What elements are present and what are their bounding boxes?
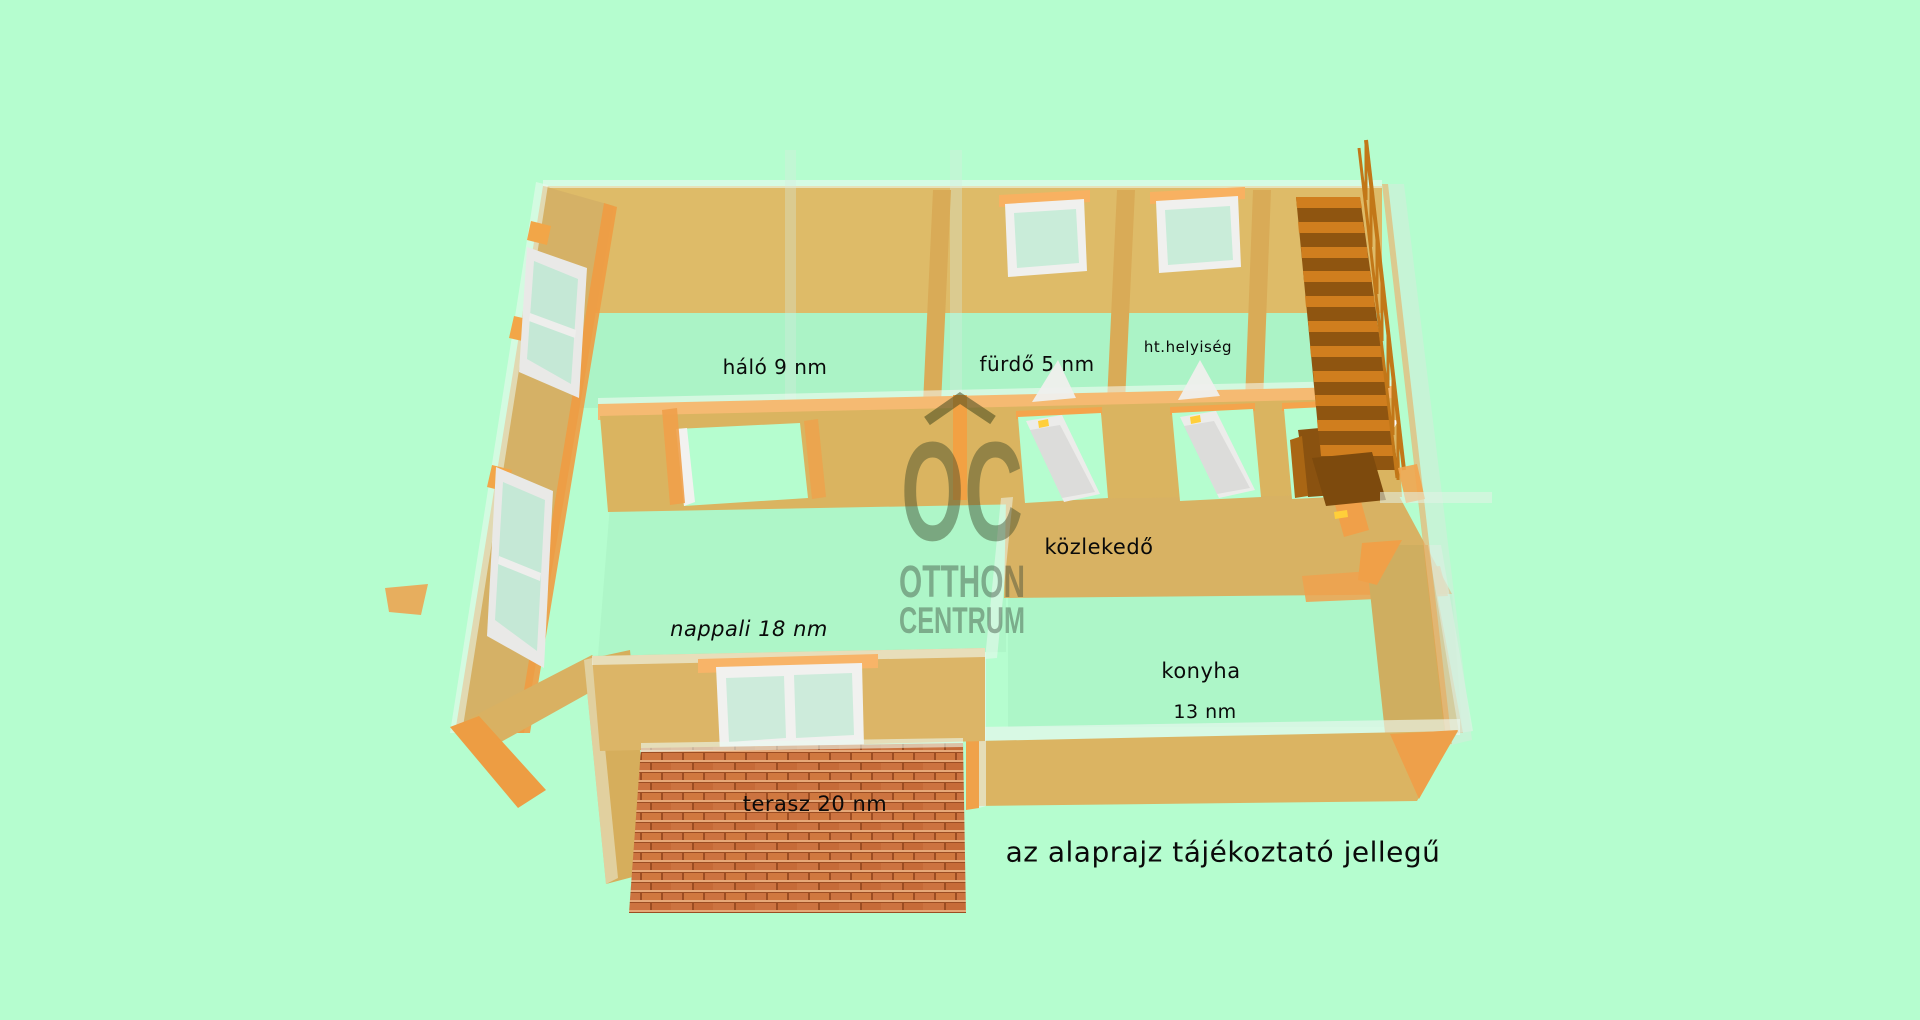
living-room-window — [716, 663, 864, 753]
room-label-terasz: terasz 20 nm — [743, 792, 887, 816]
watermark-monogram: OC — [901, 412, 1023, 570]
bathroom-window — [999, 190, 1090, 277]
left-wall-window-lower — [487, 467, 553, 668]
room-label-konyha: konyha — [1161, 659, 1240, 683]
left-wall-window-upper — [519, 247, 587, 398]
room-label-furdo: fürdő 5 nm — [979, 352, 1094, 376]
terrace — [629, 738, 966, 913]
disclaimer-note: az alaprajz tájékoztató jellegű — [1006, 836, 1441, 869]
watermark-line2: CENTRUM — [899, 600, 1025, 641]
building-3d-render: OC OTTHON CENTRUM — [0, 0, 1920, 1020]
room-label-halo: háló 9 nm — [723, 355, 828, 379]
room-label-kozlekedo: közlekedő — [1044, 535, 1153, 559]
room-label-nappali: nappali 18 nm — [670, 617, 828, 641]
utility-room-window — [1150, 187, 1245, 273]
watermark-logo: OC OTTHON CENTRUM — [899, 395, 1025, 641]
room-label-konyha-area: 13 nm — [1173, 701, 1236, 723]
room-label-ht-helyiseg: ht.helyiség — [1144, 338, 1232, 356]
floorplan-page: OC OTTHON CENTRUM háló 9 nm fürdő 5 nm h… — [0, 0, 1920, 1020]
